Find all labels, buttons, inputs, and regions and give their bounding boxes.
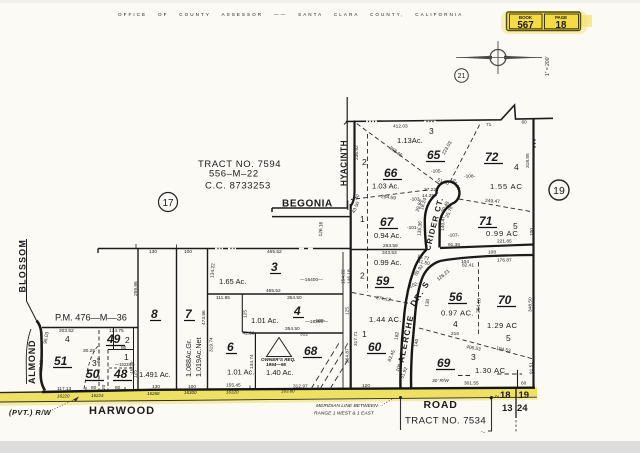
svg-text:—16400—: —16400— <box>300 277 323 283</box>
svg-text:91.38: 91.38 <box>448 242 460 248</box>
svg-text:465.52: 465.52 <box>266 288 281 294</box>
svg-text:100: 100 <box>529 228 535 236</box>
svg-text:125: 125 <box>345 307 351 315</box>
svg-text:203.52: 203.52 <box>59 328 74 334</box>
svg-text:1: 1 <box>362 329 367 339</box>
svg-text:343.53: 343.53 <box>382 250 397 256</box>
svg-text:465.52: 465.52 <box>267 249 282 255</box>
svg-text:BEGONIA: BEGONIA <box>282 199 333 210</box>
svg-text:0.99 AC: 0.99 AC <box>486 229 519 238</box>
svg-text:68: 68 <box>304 344 318 358</box>
svg-text:-..: -.. <box>481 429 485 435</box>
svg-text:71: 71 <box>479 214 493 228</box>
svg-text:30.25: 30.25 <box>83 348 95 354</box>
svg-text:154.22: 154.22 <box>341 269 347 284</box>
svg-text:146.18: 146.18 <box>346 269 352 284</box>
svg-text:2: 2 <box>125 335 130 345</box>
svg-text:80: 80 <box>91 385 97 391</box>
svg-text:50: 50 <box>86 367 100 381</box>
svg-text:1994—95: 1994—95 <box>266 362 286 367</box>
svg-text:1.03 Ac.: 1.03 Ac. <box>372 182 399 191</box>
svg-text:354.50: 354.50 <box>287 295 302 301</box>
svg-text:20: 20 <box>101 384 107 390</box>
svg-text:HARWOOD: HARWOOD <box>89 405 155 417</box>
svg-text:1.40 Ac.: 1.40 Ac. <box>266 368 293 377</box>
svg-text:473.96: 473.96 <box>201 310 207 325</box>
svg-text:80: 80 <box>121 345 127 351</box>
svg-text:318.55: 318.55 <box>525 153 531 168</box>
svg-text:4: 4 <box>453 319 458 329</box>
svg-text:3: 3 <box>271 260 278 274</box>
svg-text:0.94 Ac.: 0.94 Ac. <box>374 231 401 240</box>
svg-text:27.22: 27.22 <box>424 187 436 193</box>
svg-text:16300: 16300 <box>184 390 197 395</box>
svg-text:236.92: 236.92 <box>354 145 360 160</box>
svg-text:1.30 AC: 1.30 AC <box>475 366 506 375</box>
svg-text:134.22: 134.22 <box>210 263 217 278</box>
svg-text:348.50: 348.50 <box>528 297 534 312</box>
svg-text:2: 2 <box>495 395 501 398</box>
svg-text:-105-: -105- <box>431 169 443 175</box>
svg-text:21: 21 <box>458 73 466 80</box>
svg-text:89.33: 89.33 <box>38 359 45 372</box>
svg-text:1.491 Ac.: 1.491 Ac. <box>139 370 171 379</box>
svg-text:319.74: 319.74 <box>209 337 215 352</box>
svg-text:1.65 Ac.: 1.65 Ac. <box>219 277 246 286</box>
svg-text:263.59: 263.59 <box>383 243 398 249</box>
svg-text:354.50: 354.50 <box>285 326 300 332</box>
svg-text:—16390—: —16390— <box>305 319 328 325</box>
svg-text:18: 18 <box>556 20 567 31</box>
svg-text:49: 49 <box>106 332 121 346</box>
svg-text:126.16: 126.16 <box>318 221 325 236</box>
svg-text:BLOSSOM: BLOSSOM <box>18 239 28 293</box>
svg-text:8: 8 <box>151 307 158 321</box>
svg-text:155.45: 155.45 <box>226 383 241 389</box>
svg-text:ALMOND: ALMOND <box>27 340 37 384</box>
svg-text:4: 4 <box>293 304 301 318</box>
svg-text:70: 70 <box>498 293 512 307</box>
svg-text:1.29 AC: 1.29 AC <box>487 321 518 330</box>
svg-text:1.019Ac.Net: 1.019Ac.Net <box>194 337 203 377</box>
svg-text:100: 100 <box>184 249 192 255</box>
svg-text:56: 56 <box>449 290 463 304</box>
svg-text:48: 48 <box>113 367 128 381</box>
svg-text:1: 1 <box>360 214 365 224</box>
svg-text:HYACINTH: HYACINTH <box>340 140 349 186</box>
svg-text:16224: 16224 <box>91 393 104 398</box>
svg-text:567: 567 <box>517 20 534 31</box>
svg-text:69: 69 <box>437 356 451 370</box>
svg-text:19: 19 <box>553 185 565 197</box>
svg-text:6: 6 <box>227 340 234 354</box>
svg-text:1” = 200’: 1” = 200’ <box>545 56 551 76</box>
svg-text:264.87: 264.87 <box>345 348 351 363</box>
svg-text:80: 80 <box>115 385 121 391</box>
svg-text:91.51: 91.51 <box>529 362 535 374</box>
svg-text:72: 72 <box>485 150 499 164</box>
svg-text:19: 19 <box>519 390 530 401</box>
svg-text:MERIDIAN LINE BETWEEN··⋅: MERIDIAN LINE BETWEEN··⋅ <box>316 403 383 409</box>
svg-text:120: 120 <box>362 383 370 389</box>
svg-text:221.85: 221.85 <box>497 239 512 245</box>
svg-text:124.75: 124.75 <box>109 328 124 334</box>
svg-text:3: 3 <box>429 126 434 136</box>
svg-text:-107-: -107- <box>448 233 460 239</box>
svg-text:4: 4 <box>65 334 70 344</box>
svg-text:65: 65 <box>427 148 441 162</box>
svg-text:59: 59 <box>376 274 390 288</box>
svg-text:254.10: 254.10 <box>476 298 483 313</box>
svg-text:60: 60 <box>368 340 382 354</box>
svg-text:-108-: -108- <box>464 174 476 180</box>
svg-text:176.87: 176.87 <box>497 258 512 264</box>
svg-text:2: 2 <box>360 271 365 281</box>
svg-text:0.99 Ac.: 0.99 Ac. <box>374 258 401 267</box>
svg-text:301.55: 301.55 <box>464 381 479 387</box>
svg-text:5: 5 <box>506 333 511 343</box>
svg-text:3: 3 <box>471 352 476 362</box>
svg-text:1.55 AC: 1.55 AC <box>490 182 523 191</box>
svg-text:TRACT NO. 7534: TRACT NO. 7534 <box>405 416 486 427</box>
svg-text:556–M–22: 556–M–22 <box>209 169 259 180</box>
svg-text:ROAD: ROAD <box>424 399 458 411</box>
svg-text:60: 60 <box>521 381 527 387</box>
svg-text:82.41: 82.41 <box>462 263 474 269</box>
svg-text:2: 2 <box>362 157 367 167</box>
svg-text:71: 71 <box>486 122 492 128</box>
svg-text:117.13: 117.13 <box>57 386 72 392</box>
svg-text:18: 18 <box>500 390 511 401</box>
svg-text:163.80: 163.80 <box>281 389 295 394</box>
svg-text:—16228—: —16228— <box>115 362 136 367</box>
svg-text:317.71: 317.71 <box>353 331 359 346</box>
svg-text:4: 4 <box>514 162 519 172</box>
svg-text:312.97: 312.97 <box>293 384 308 390</box>
svg-text:412.03: 412.03 <box>393 124 408 130</box>
svg-text:30’ R/W: 30’ R/W <box>432 378 449 384</box>
svg-text:249.47: 249.47 <box>485 198 500 205</box>
svg-text:13: 13 <box>502 403 513 414</box>
svg-text:-101-: -101- <box>407 225 419 231</box>
svg-text:100: 100 <box>188 384 196 390</box>
svg-text:134.74: 134.74 <box>249 354 255 369</box>
svg-text:(PVT.) R/W: (PVT.) R/W <box>9 408 52 417</box>
svg-text:1.01 Ac.: 1.01 Ac. <box>251 316 278 325</box>
svg-text:1.088Ac.Gr.: 1.088Ac.Gr. <box>184 339 193 377</box>
svg-text:130: 130 <box>152 384 160 390</box>
svg-text:1: 1 <box>124 352 129 362</box>
svg-text:RANGE 1 WEST & 1 EAST: RANGE 1 WEST & 1 EAST <box>314 411 375 417</box>
svg-text:P.M. 476—M—36: P.M. 476—M—36 <box>55 313 127 323</box>
svg-text:1.13Ac.: 1.13Ac. <box>397 136 423 145</box>
svg-text:C.C. 8733253: C.C. 8733253 <box>205 181 271 192</box>
svg-text:60: 60 <box>522 120 528 126</box>
svg-text:50: 50 <box>96 357 102 363</box>
svg-text:16268: 16268 <box>147 391 160 396</box>
svg-text:216: 216 <box>451 331 459 337</box>
svg-text:51: 51 <box>54 354 68 368</box>
svg-text:OFFICE OF COUNTY ASSESSOR: OFFICE OF COUNTY ASSESSOR —— SANTA CLARA… <box>118 12 463 17</box>
svg-text:24: 24 <box>517 403 528 414</box>
svg-text:108: 108 <box>488 250 496 256</box>
svg-text:1.44 AC.: 1.44 AC. <box>369 315 402 324</box>
svg-text:111.85: 111.85 <box>216 295 230 301</box>
svg-text:259.96: 259.96 <box>133 281 139 296</box>
svg-text:140.47: 140.47 <box>440 216 447 231</box>
svg-text:312: 312 <box>300 332 308 338</box>
svg-text:16220: 16220 <box>57 393 70 398</box>
svg-text:125: 125 <box>243 310 249 318</box>
svg-text:16320: 16320 <box>226 390 239 395</box>
svg-text:0.97 AC.: 0.97 AC. <box>441 309 474 318</box>
svg-text:42.50: 42.50 <box>243 331 255 337</box>
svg-text:17: 17 <box>162 198 174 209</box>
svg-text:130: 130 <box>149 249 157 255</box>
svg-text:66: 66 <box>384 166 398 180</box>
svg-text:67: 67 <box>380 215 395 229</box>
